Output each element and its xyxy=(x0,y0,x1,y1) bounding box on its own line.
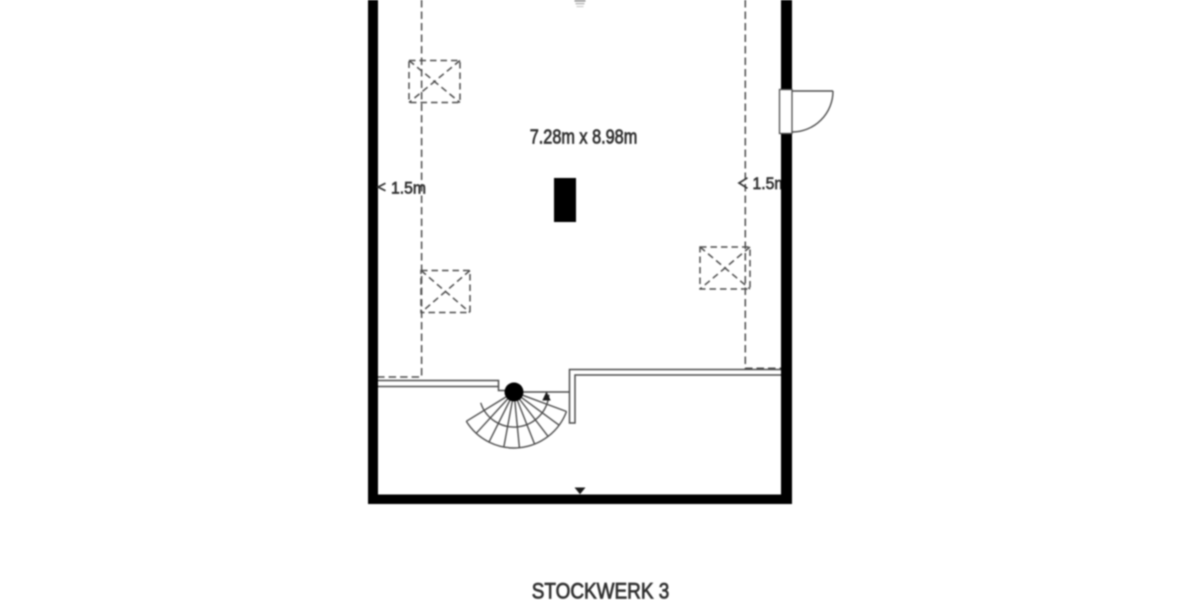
svg-text:STOCKWERK 3: STOCKWERK 3 xyxy=(532,578,670,600)
svg-text:7.28m x 8.98m: 7.28m x 8.98m xyxy=(530,125,638,148)
svg-text:1.5m: 1.5m xyxy=(391,178,426,197)
